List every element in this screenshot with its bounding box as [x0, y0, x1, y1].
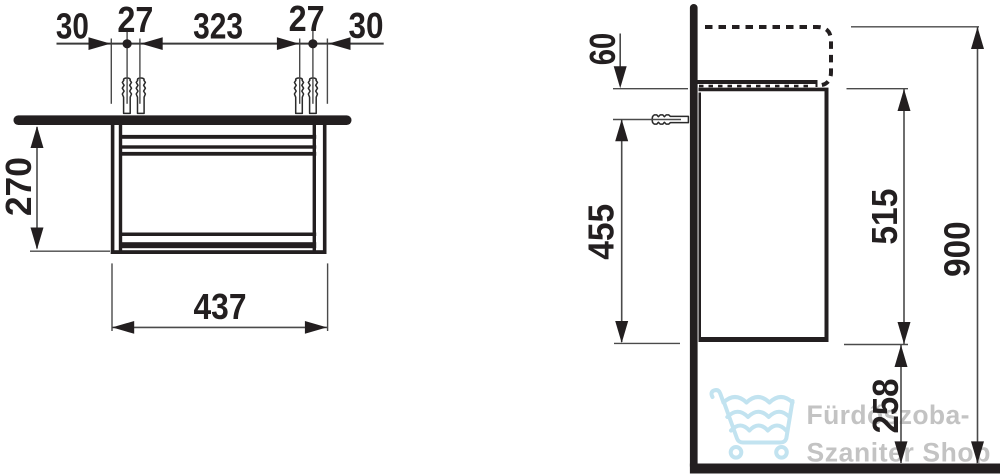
svg-text:900: 900	[936, 221, 977, 277]
svg-text:60: 60	[582, 33, 623, 66]
svg-text:30: 30	[349, 5, 384, 46]
svg-text:27: 27	[289, 0, 325, 39]
svg-text:323: 323	[193, 5, 243, 46]
svg-text:258: 258	[865, 379, 906, 434]
svg-text:515: 515	[864, 189, 905, 245]
svg-text:437: 437	[194, 286, 247, 327]
svg-text:30: 30	[56, 6, 89, 47]
svg-text:270: 270	[0, 157, 39, 216]
svg-text:27: 27	[117, 0, 153, 40]
svg-text:455: 455	[581, 204, 622, 260]
